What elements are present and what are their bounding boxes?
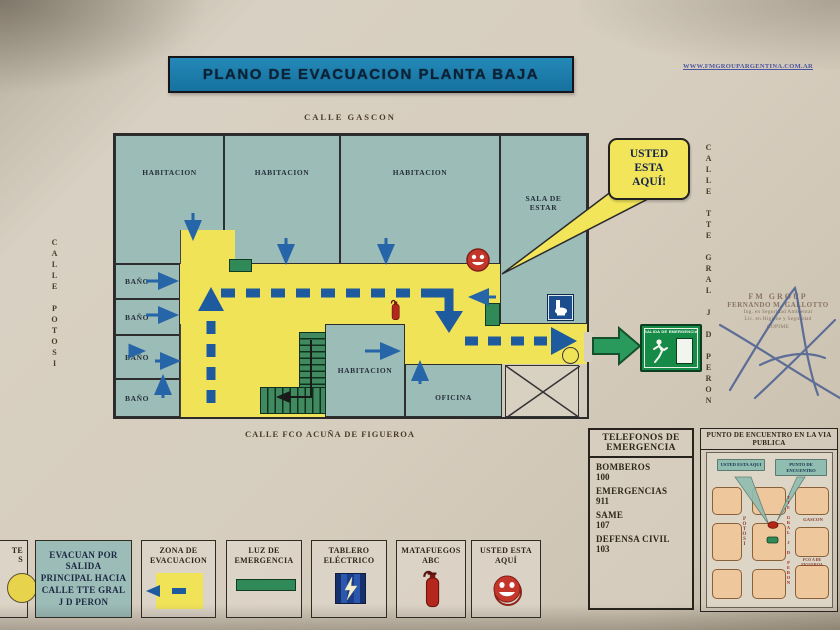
page-title: PLANO DE EVACUACION PLANTA BAJA — [168, 56, 574, 93]
legend-item-cutoff: TE S — [0, 540, 28, 618]
route-arrow-icon — [146, 585, 196, 597]
legend-item-tablero: TABLERO ELÉCTRICO — [311, 540, 387, 618]
phone-number: 103 — [590, 544, 692, 554]
map-meeting-point-label: PUNTO DE ENCUENTRO — [775, 459, 827, 476]
legend-circle-icon — [7, 573, 37, 603]
signature-scribble — [700, 270, 840, 410]
legend-fragment: S — [0, 555, 27, 564]
emergency-exit-sign: SALIDA DE EMERGENCIA — [640, 324, 702, 372]
legend-label: ZONA DE EVACUACION — [142, 541, 215, 567]
you-are-here-callout: USTED ESTA AQUÍ! — [608, 138, 690, 200]
legend-item-matafuegos: MATAFUEGOS ABC — [396, 540, 466, 618]
legend-item-luz-emergencia: LUZ DE EMERGENCIA — [226, 540, 302, 618]
phone-service: BOMBEROS — [590, 458, 692, 472]
callout-text: USTED ESTA AQUÍ! — [620, 148, 678, 189]
street-label-figueroa: CALLE FCO ACUÑA DE FIGUEROA — [200, 429, 460, 439]
electrical-panel-icon — [335, 573, 366, 604]
emergency-phones-panel: TELEFONOS DE EMERGENCIA BOMBEROS 100 EME… — [588, 428, 694, 610]
legend-label: LUZ DE EMERGENCIA — [227, 541, 301, 567]
map-street-gascon: GASCON — [797, 517, 829, 522]
phones-title: TELEFONOS DE EMERGENCIA — [590, 430, 692, 458]
legend-item-zona-evacuacion: ZONA DE EVACUACION — [141, 540, 216, 618]
website-link[interactable]: WWW.FMGROUPARGENTINA.COM.AR — [668, 63, 828, 70]
phone-number: 100 — [590, 472, 692, 482]
phone-service: EMERGENCIAS — [590, 482, 692, 496]
fire-extinguisher-icon — [421, 569, 443, 609]
map-street-figueroa: FCO A DE FIGUEROA — [793, 557, 831, 567]
legend-label: TABLERO ELÉCTRICO — [312, 541, 386, 567]
phone-number: 911 — [590, 496, 692, 506]
meeting-point-panel: PUNTO DE ENCUENTRO EN LA VIA PUBLICA UST… — [700, 428, 838, 612]
legend-label: MATAFUEGOS ABC — [397, 541, 465, 567]
emergency-light-swatch — [236, 579, 296, 591]
map-street-potosi: POTOSI — [742, 517, 747, 572]
exit-door-icon — [676, 338, 693, 364]
meeting-point-title: PUNTO DE ENCUENTRO EN LA VIA PUBLICA — [701, 429, 837, 450]
running-man-icon — [650, 338, 670, 364]
legend-label: EVACUAN POR SALIDA PRINCIPAL HACIA CALLE… — [40, 550, 128, 608]
photo-shadow — [580, 0, 840, 70]
meeting-point-map: USTED ESTA AQUI PUNTO DE ENCUENTRO POTOS… — [706, 452, 833, 608]
exit-sign-label: SALIDA DE EMERGENCIA — [642, 329, 700, 334]
evacuation-plan-photo: { "header": { "title": "PLANO DE EVACUAC… — [0, 0, 840, 630]
phone-service: DEFENSA CIVIL — [590, 530, 692, 544]
map-you-are-here-label: USTED ESTA AQUI — [717, 459, 765, 471]
street-label-potosi: CALLE POTOSI — [50, 216, 59, 391]
exit-direction-arrow-icon — [592, 325, 642, 367]
map-callout-pointers — [707, 453, 832, 607]
phone-service: SAME — [590, 506, 692, 520]
phone-number: 107 — [590, 520, 692, 530]
legend-item-evacuan: EVACUAN POR SALIDA PRINCIPAL HACIA CALLE… — [35, 540, 132, 618]
map-street-peron: TTE GRAL J D PERON — [786, 495, 791, 599]
callout-pointer — [488, 186, 652, 282]
legend-label: USTED ESTA AQUÍ — [472, 541, 540, 567]
you-are-here-smiley-icon — [491, 573, 525, 609]
legend-item-usted-esta-aqui: USTED ESTA AQUÍ — [471, 540, 541, 618]
street-label-gascon: CALLE GASCON — [255, 112, 445, 122]
legend-fragment: TE — [0, 541, 27, 555]
